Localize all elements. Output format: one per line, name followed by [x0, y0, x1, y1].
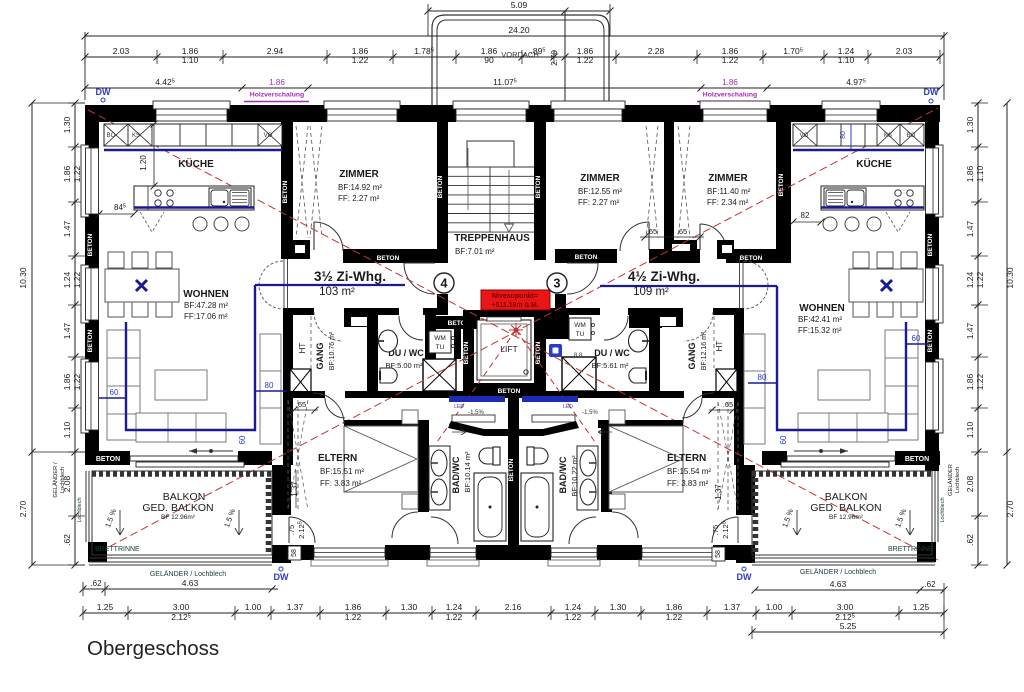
svg-text:BETON: BETON	[535, 175, 542, 198]
svg-text:BF 12.96m²: BF 12.96m²	[161, 514, 196, 521]
svg-text:BAD/WC: BAD/WC	[451, 456, 461, 493]
svg-text:Lochblech: Lochblech	[955, 467, 961, 493]
svg-text:BETON: BETON	[778, 173, 785, 196]
svg-text:WOHNEN: WOHNEN	[799, 303, 845, 314]
svg-text:.65: .65	[647, 227, 657, 236]
svg-text:1.37: 1.37	[290, 481, 299, 497]
svg-text:Holzverschalung: Holzverschalung	[250, 92, 304, 99]
svg-text:1.86: 1.86	[62, 373, 72, 390]
svg-text:ZIMMER: ZIMMER	[580, 173, 620, 184]
svg-text:2.94: 2.94	[267, 46, 284, 56]
svg-text:1.22: 1.22	[72, 165, 82, 182]
svg-text:BETON: BETON	[905, 456, 929, 463]
svg-text:3.00: 3.00	[837, 602, 854, 612]
svg-text:Lochblech: Lochblech	[60, 467, 66, 493]
svg-text:1.24: 1.24	[62, 271, 72, 288]
svg-text:1.30: 1.30	[62, 116, 72, 133]
svg-text:1.22: 1.22	[345, 612, 362, 622]
svg-text:Holzverschalung: Holzverschalung	[703, 92, 757, 99]
svg-text:4.63: 4.63	[830, 579, 847, 589]
svg-text:80: 80	[758, 373, 767, 382]
svg-text:1.86: 1.86	[965, 165, 975, 182]
svg-text:BF:42.41 m²: BF:42.41 m²	[798, 315, 842, 324]
svg-text:1.22: 1.22	[72, 271, 82, 288]
svg-text:10.30: 10.30	[18, 267, 28, 289]
svg-text:DW: DW	[96, 87, 111, 97]
svg-text:103 m²: 103 m²	[319, 286, 355, 298]
svg-text:BF:10.22 m²: BF:10.22 m²	[570, 455, 579, 497]
svg-text:1.86: 1.86	[722, 78, 738, 87]
svg-text:1.24: 1.24	[965, 271, 975, 288]
svg-text:BF:10.76 m²: BF:10.76 m²	[329, 331, 336, 370]
svg-text:FF:17.06 m²: FF:17.06 m²	[184, 312, 228, 321]
svg-text:FF: 2.27 m²: FF: 2.27 m²	[578, 198, 620, 207]
svg-text:GELÄNDER / Lochblech: GELÄNDER / Lochblech	[150, 570, 226, 578]
svg-text:80: 80	[265, 381, 274, 390]
svg-text:3½ Zi-Whg.: 3½ Zi-Whg.	[314, 269, 386, 284]
svg-text:BF:12.16 m²: BF:12.16 m²	[701, 331, 708, 370]
svg-text:GELÄNDER /: GELÄNDER /	[52, 462, 59, 498]
svg-text:1.25: 1.25	[913, 602, 930, 612]
svg-text:60: 60	[912, 334, 921, 343]
svg-text:1.22: 1.22	[352, 55, 369, 65]
svg-text:KÜCHE: KÜCHE	[856, 157, 892, 170]
svg-text:.62: .62	[90, 579, 102, 588]
svg-text:DW: DW	[274, 572, 289, 582]
svg-text:1.20: 1.20	[139, 155, 148, 171]
svg-text:1.86: 1.86	[269, 78, 285, 87]
svg-text:HT: HT	[715, 341, 724, 352]
svg-text:Obergeschoss: Obergeschoss	[87, 637, 219, 660]
svg-text:3.00: 3.00	[173, 602, 190, 612]
svg-text:11.075: 11.075	[493, 77, 517, 87]
svg-text:BF:15.51 m²: BF:15.51 m²	[320, 467, 364, 476]
svg-text:Lochblech: Lochblech	[77, 497, 83, 522]
svg-text:1.22: 1.22	[975, 373, 985, 390]
svg-text:60: 60	[779, 435, 788, 444]
svg-text:BETON: BETON	[282, 180, 289, 203]
svg-text:FF: 3.83 m²: FF: 3.83 m²	[667, 479, 709, 488]
svg-text:LED: LED	[454, 404, 464, 410]
svg-text:4.63: 4.63	[182, 578, 199, 588]
svg-text:FF: 3.83 m²: FF: 3.83 m²	[320, 479, 362, 488]
svg-text:ELTERN: ELTERN	[318, 453, 357, 464]
svg-text:2.16: 2.16	[505, 602, 522, 612]
svg-text:1.30: 1.30	[965, 116, 975, 133]
svg-text:5.25: 5.25	[840, 621, 857, 631]
svg-text:BETON: BETON	[96, 456, 120, 463]
svg-text:1.10: 1.10	[838, 55, 855, 65]
svg-text:1.47: 1.47	[62, 322, 72, 339]
svg-text:90: 90	[484, 55, 494, 65]
svg-text:BF:47.28 m²: BF:47.28 m²	[184, 301, 228, 310]
svg-text:Lochblech: Lochblech	[940, 497, 946, 522]
svg-text:.65: .65	[677, 227, 687, 236]
svg-text:1.86: 1.86	[666, 602, 683, 612]
svg-text:BETON: BETON	[535, 341, 542, 364]
svg-text:FF: 2.27 m²: FF: 2.27 m²	[338, 194, 380, 203]
svg-text:ZIMMER: ZIMMER	[339, 169, 379, 180]
svg-text:DW: DW	[737, 572, 752, 582]
svg-text:GANG: GANG	[687, 343, 697, 370]
svg-text:2.70: 2.70	[18, 500, 28, 517]
svg-text:4½ Zi-Whg.: 4½ Zi-Whg.	[628, 269, 700, 284]
svg-text:BETON: BETON	[463, 341, 470, 364]
svg-text:ZIMMER: ZIMMER	[708, 173, 748, 184]
svg-text:KS: KS	[132, 133, 140, 139]
svg-text:2.03: 2.03	[113, 46, 130, 56]
svg-text:1.22: 1.22	[565, 612, 582, 622]
svg-text:TU: TU	[436, 344, 445, 351]
svg-text:.65: .65	[723, 400, 733, 409]
svg-text:1.10: 1.10	[975, 165, 985, 182]
svg-text:-1.5%: -1.5%	[582, 410, 598, 416]
svg-text:58: 58	[291, 549, 298, 557]
svg-text:ELTERN: ELTERN	[667, 453, 706, 464]
svg-text:58: 58	[715, 550, 722, 558]
svg-text:DU / WC: DU / WC	[594, 348, 630, 358]
svg-text:1.24: 1.24	[446, 602, 463, 612]
svg-text:1.37: 1.37	[714, 484, 723, 500]
svg-text:VO: VO	[800, 133, 809, 139]
svg-text:GED. BALKON: GED. BALKON	[810, 502, 881, 514]
svg-text:3: 3	[554, 277, 561, 291]
svg-text:GELÄNDER: GELÄNDER	[947, 464, 954, 496]
svg-text:2.70: 2.70	[550, 50, 559, 66]
svg-text:DW: DW	[924, 87, 939, 97]
svg-text:BETON: BETON	[437, 175, 444, 198]
svg-text:BF:12.55 m²: BF:12.55 m²	[578, 187, 622, 196]
svg-text:4: 4	[441, 277, 448, 291]
svg-text:GELÄNDER / Lochblech: GELÄNDER / Lochblech	[800, 568, 876, 576]
svg-text:+511.19m ü.M.: +511.19m ü.M.	[491, 302, 538, 309]
svg-text:1.22: 1.22	[577, 55, 594, 65]
svg-text:80: 80	[840, 131, 847, 139]
svg-text:BRETTRINNE: BRETTRINNE	[95, 546, 140, 553]
svg-text:.62: .62	[62, 534, 72, 546]
svg-text:.65: .65	[296, 400, 306, 409]
svg-text:BETON: BETON	[87, 329, 94, 352]
svg-text:24.20: 24.20	[508, 25, 530, 35]
svg-text:1.30: 1.30	[401, 602, 418, 612]
svg-text:1.22: 1.22	[72, 373, 82, 390]
svg-text:1.86: 1.86	[965, 373, 975, 390]
svg-text:2.70: 2.70	[1005, 500, 1015, 517]
svg-text:BO: BO	[107, 133, 116, 139]
svg-text:.75: .75	[287, 525, 296, 535]
svg-text:1.25: 1.25	[97, 602, 114, 612]
svg-text:109 m²: 109 m²	[633, 286, 669, 298]
svg-text:82: 82	[801, 211, 810, 220]
svg-text:BETON: BETON	[498, 388, 521, 395]
svg-text:1.47: 1.47	[62, 220, 72, 237]
svg-text:2.08: 2.08	[965, 475, 975, 492]
svg-text:1.22: 1.22	[666, 612, 683, 622]
svg-text:BF:11.40 m²: BF:11.40 m²	[707, 187, 751, 196]
svg-text:1.00: 1.00	[245, 602, 262, 612]
svg-text:BF:10.14 m²: BF:10.14 m²	[463, 451, 472, 493]
svg-text:TREPPENHAUS: TREPPENHAUS	[454, 233, 530, 244]
svg-text:60: 60	[110, 388, 119, 397]
svg-text:1.22: 1.22	[446, 612, 463, 622]
svg-text:10.30: 10.30	[1005, 267, 1015, 289]
svg-text:8.8: 8.8	[574, 353, 583, 359]
svg-text:GED. BALKON: GED. BALKON	[142, 502, 213, 514]
svg-text:1.22: 1.22	[975, 271, 985, 288]
svg-text:1.86: 1.86	[62, 165, 72, 182]
svg-text:LED: LED	[563, 404, 573, 410]
svg-text:1.10: 1.10	[965, 421, 975, 438]
svg-text:BRETTRINNE: BRETTRINNE	[888, 546, 933, 553]
svg-text:BF:15.54 m²: BF:15.54 m²	[667, 467, 711, 476]
svg-text:BF:5.61 m²: BF:5.61 m²	[591, 361, 629, 370]
svg-text:Niveaupunkt=: Niveaupunkt=	[492, 293, 538, 300]
svg-text:BETON: BETON	[575, 254, 598, 261]
svg-text:VO: VO	[264, 133, 273, 139]
svg-text:BETON: BETON	[927, 329, 934, 352]
svg-text:-1.5%: -1.5%	[468, 410, 484, 416]
svg-text:WOHNEN: WOHNEN	[183, 289, 229, 300]
svg-text:BAD/WC: BAD/WC	[558, 456, 568, 493]
svg-text:GANG: GANG	[315, 343, 325, 370]
svg-text:FF: 2.34 m²: FF: 2.34 m²	[707, 198, 749, 207]
svg-text:5.09: 5.09	[511, 0, 528, 10]
svg-text:KS: KS	[884, 133, 892, 139]
svg-text:1.10: 1.10	[62, 421, 72, 438]
svg-text:1.00: 1.00	[766, 602, 783, 612]
svg-text:BETON: BETON	[508, 458, 515, 481]
svg-text:2.28: 2.28	[648, 46, 665, 56]
svg-text:BETON: BETON	[87, 233, 94, 256]
svg-text:1.47: 1.47	[965, 322, 975, 339]
svg-text:1.37: 1.37	[287, 602, 304, 612]
svg-text:TU: TU	[576, 331, 585, 338]
svg-text:2.03: 2.03	[896, 46, 913, 56]
svg-text:1.24: 1.24	[565, 602, 582, 612]
svg-text:.62: .62	[965, 534, 975, 546]
svg-text:1.30: 1.30	[610, 602, 627, 612]
svg-text:BETON: BETON	[927, 233, 934, 256]
svg-text:KÜCHE: KÜCHE	[178, 157, 214, 170]
svg-text:WM: WM	[574, 322, 586, 329]
svg-text:1.47: 1.47	[965, 220, 975, 237]
svg-text:WM: WM	[434, 335, 446, 342]
svg-text:BF:7.01 m²: BF:7.01 m²	[455, 247, 495, 256]
svg-text:BETON: BETON	[377, 255, 400, 262]
svg-text:60: 60	[238, 435, 247, 444]
svg-text:BF:14.92 m²: BF:14.92 m²	[338, 183, 382, 192]
svg-text:1.22: 1.22	[722, 55, 739, 65]
svg-text:HT: HT	[298, 343, 307, 354]
svg-text:FF:15.32 m²: FF:15.32 m²	[798, 326, 842, 335]
svg-text:1.37: 1.37	[724, 602, 741, 612]
svg-text:1.10: 1.10	[182, 55, 199, 65]
svg-text:1.86: 1.86	[345, 602, 362, 612]
svg-text:.62: .62	[924, 580, 936, 589]
svg-text:BF 12.96m²: BF 12.96m²	[829, 514, 864, 521]
svg-text:.75: .75	[711, 525, 720, 535]
svg-text:BO: BO	[907, 133, 916, 139]
